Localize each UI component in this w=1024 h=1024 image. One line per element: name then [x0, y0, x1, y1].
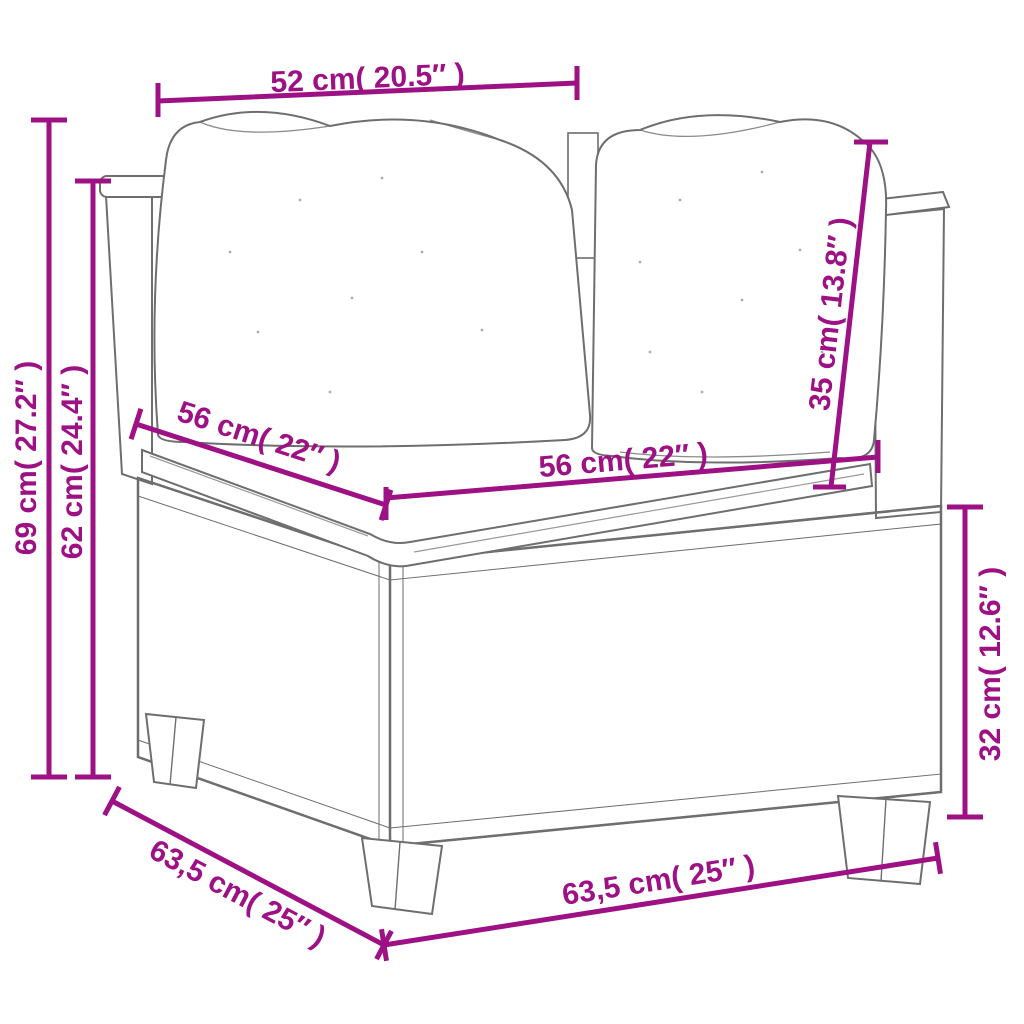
- dimension-diagram-page: 52 cm( 20.5″ ) 69 cm( 27.2″ ) 62 cm( 24.…: [0, 0, 1024, 1024]
- dim-base-height: 32 cm( 12.6″ ): [947, 507, 1007, 817]
- front-corner-foot: [362, 838, 442, 914]
- dim-base-depth-label: 63,5 cm( 25″ ): [144, 833, 331, 953]
- dim-top-width: 52 cm( 20.5″ ): [158, 58, 577, 117]
- dim-top-width-label: 52 cm( 20.5″ ): [270, 58, 466, 99]
- left-foot: [146, 714, 204, 788]
- dim-base-depth: 63,5 cm( 25″ ): [105, 787, 392, 959]
- dim-back-height-label: 62 cm( 24.4″ ): [56, 365, 89, 559]
- dim-total-height-label: 69 cm( 27.2″ ): [10, 361, 43, 555]
- dim-base-height-label: 32 cm( 12.6″ ): [974, 567, 1007, 761]
- left-back-cushion: [154, 112, 590, 447]
- corner-sofa-dimension-diagram: 52 cm( 20.5″ ) 69 cm( 27.2″ ) 62 cm( 24.…: [0, 0, 1024, 1024]
- dim-seat-width-label: 56 cm( 22″ ): [537, 437, 709, 484]
- sofa-sketch: [100, 112, 949, 914]
- dim-back-height: 62 cm( 24.4″ ): [56, 181, 111, 777]
